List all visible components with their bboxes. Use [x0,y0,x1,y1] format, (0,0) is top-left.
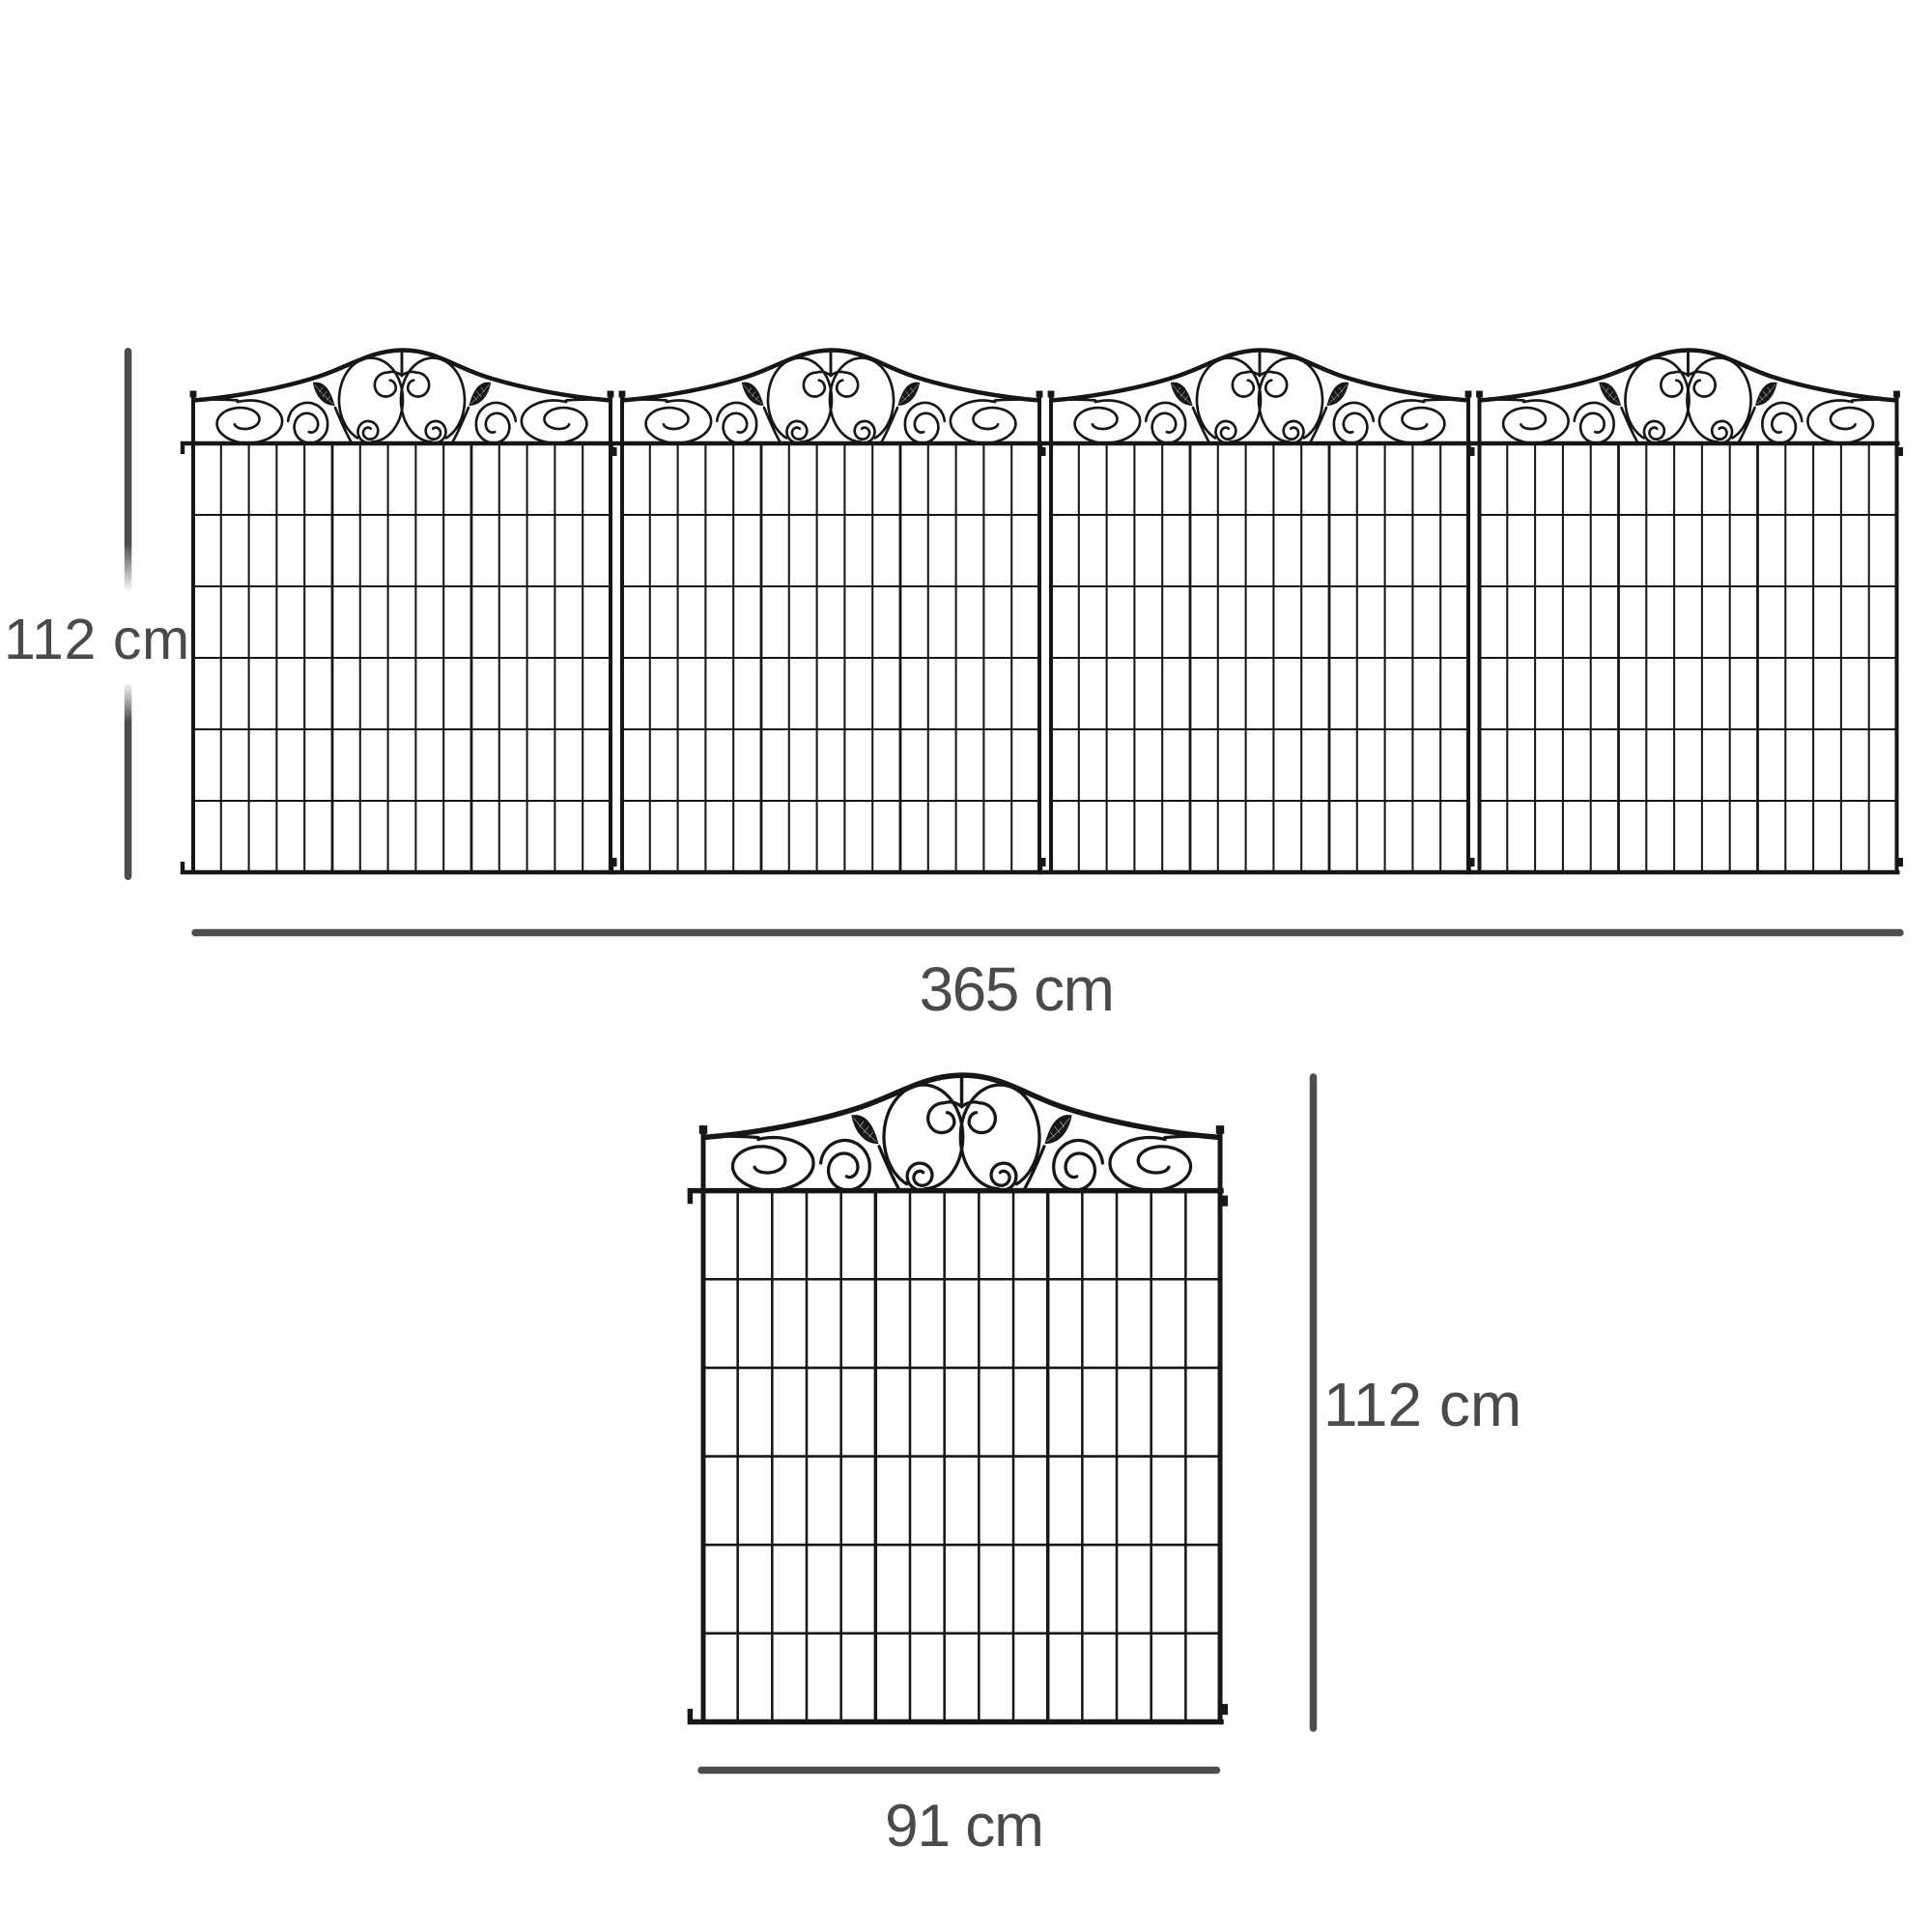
svg-text:91 cm: 91 cm [885,1793,1043,1860]
svg-text:112 cm: 112 cm [4,608,190,671]
svg-text:112 cm: 112 cm [1323,1370,1521,1439]
svg-text:365 cm: 365 cm [920,954,1114,1024]
